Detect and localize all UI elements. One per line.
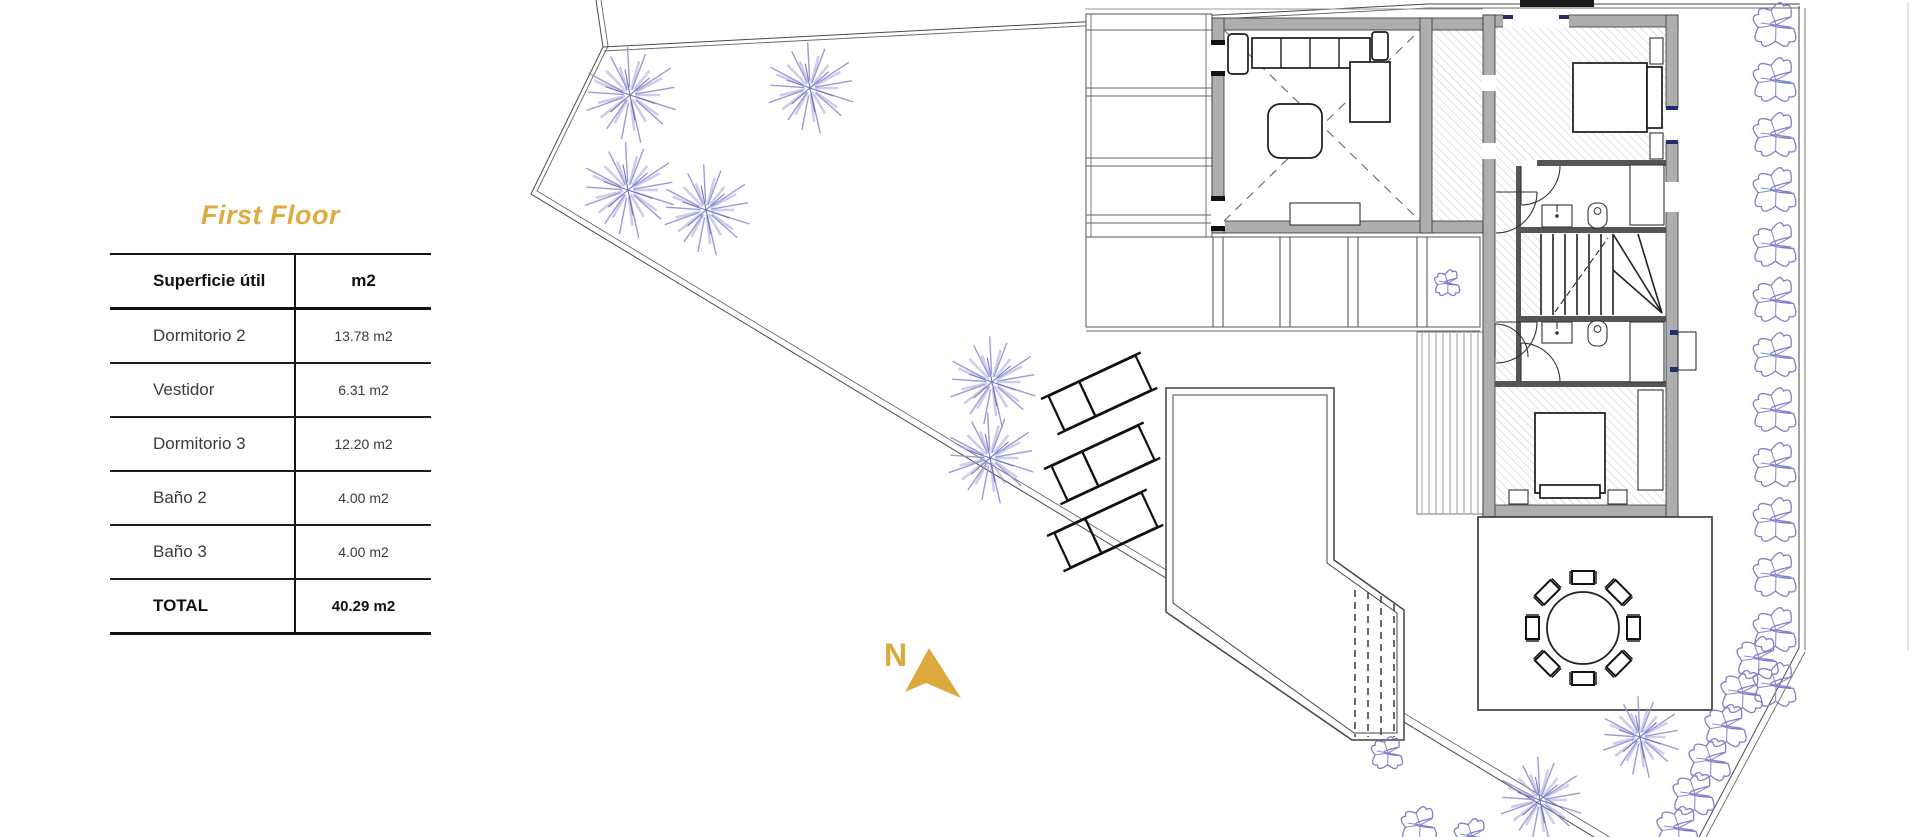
tree-icon <box>769 42 854 133</box>
shrub-icon <box>1753 278 1796 322</box>
north-arrow-icon <box>905 648 961 698</box>
north-label: N <box>884 637 907 673</box>
tree-icon <box>1501 757 1581 837</box>
chair <box>1627 615 1640 641</box>
nightstand <box>1650 38 1663 64</box>
shrub-icon <box>1753 333 1796 377</box>
terrace <box>1478 517 1712 710</box>
shrub-icon <box>1753 3 1796 47</box>
shrub-icon <box>1401 807 1436 837</box>
round-table <box>1547 592 1619 664</box>
deck-strip <box>1417 332 1483 514</box>
floorplan-page: First Floor Superficie útil m2 Dormitori… <box>0 0 1920 837</box>
living-room-void <box>1224 30 1420 225</box>
north-arrow: N <box>884 637 961 698</box>
shrub-icon <box>1753 443 1796 487</box>
bathroom3 <box>1496 321 1664 382</box>
shrub-icon <box>1371 737 1402 769</box>
toilet <box>1588 321 1607 346</box>
shrub-icon <box>1753 663 1796 707</box>
bathroom2 <box>1521 165 1664 228</box>
shrub-icon <box>1753 388 1796 432</box>
tree-icon <box>585 142 674 238</box>
shrub-icon <box>1753 113 1796 157</box>
shrub-icon <box>1753 553 1796 597</box>
shrub-icon <box>1753 608 1796 652</box>
pool <box>1166 388 1404 740</box>
nightstand <box>1608 490 1627 504</box>
shrub-icon <box>1753 58 1796 102</box>
shrub-icon <box>1454 819 1487 837</box>
bed-pillow <box>1647 67 1662 128</box>
shower <box>1630 165 1664 225</box>
bed <box>1535 413 1605 493</box>
wardrobe <box>1638 390 1663 490</box>
shower <box>1630 322 1664 382</box>
shrub-icon <box>1753 223 1796 267</box>
side-table <box>1372 32 1388 60</box>
sun-loungers <box>1041 353 1163 572</box>
pergola-roof <box>1086 14 1212 237</box>
site-plan: N <box>0 0 1920 837</box>
tree-icon <box>951 336 1036 427</box>
tv-stand <box>1290 203 1360 225</box>
shrub-icon <box>1753 498 1796 542</box>
chair <box>1570 672 1596 685</box>
bed-pillow <box>1540 485 1600 498</box>
tree-icon <box>665 164 750 255</box>
staircase <box>1541 234 1662 315</box>
armchair <box>1228 34 1248 74</box>
coffee-table <box>1268 104 1322 158</box>
chair <box>1570 571 1596 584</box>
shrub-icon <box>1753 168 1796 212</box>
chair <box>1526 615 1539 641</box>
toilet <box>1588 203 1607 228</box>
nightstand <box>1650 133 1663 159</box>
nightstand <box>1509 490 1528 504</box>
sofa-chaise <box>1350 62 1390 122</box>
balcony-strip <box>1086 237 1480 331</box>
bed <box>1573 63 1647 132</box>
